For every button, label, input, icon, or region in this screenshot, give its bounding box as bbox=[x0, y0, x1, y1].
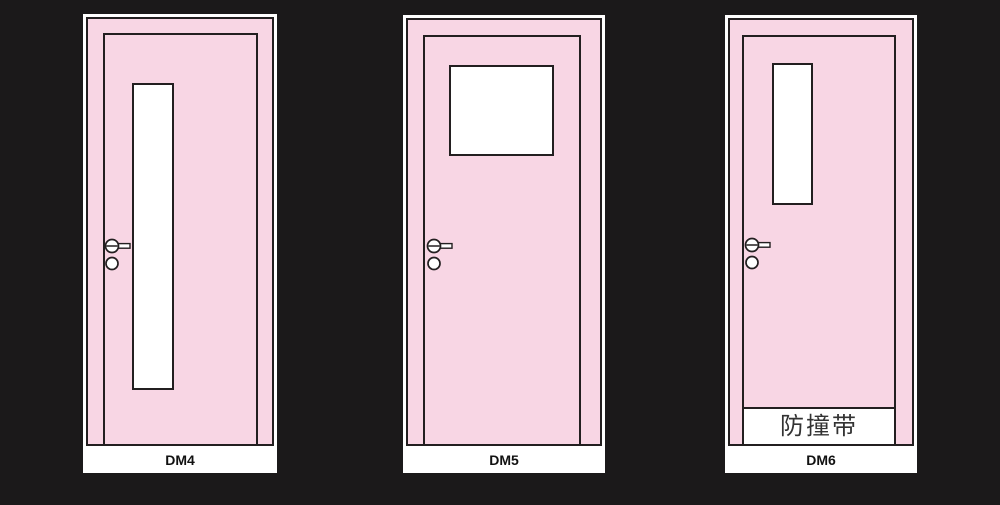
door-leaf bbox=[103, 33, 258, 444]
door-label: DM6 bbox=[725, 446, 917, 473]
door-card-dm4: DM4 bbox=[83, 14, 277, 473]
glass-panel bbox=[449, 65, 554, 156]
door-frame bbox=[406, 18, 602, 446]
glass-panel bbox=[132, 83, 174, 390]
glass-panel bbox=[772, 63, 813, 205]
door-leaf: 防撞带 bbox=[742, 35, 896, 444]
door-frame: 防撞带 bbox=[728, 18, 914, 446]
bumper-strip-label: 防撞带 bbox=[780, 415, 858, 439]
door-label: DM4 bbox=[83, 446, 277, 473]
door-handle-icon bbox=[425, 237, 459, 273]
bumper-strip: 防撞带 bbox=[744, 407, 894, 444]
door-handle-icon bbox=[103, 237, 137, 273]
door-frame bbox=[86, 17, 274, 446]
door-label: DM5 bbox=[403, 446, 605, 473]
door-card-dm5: DM5 bbox=[403, 15, 605, 473]
door-leaf bbox=[423, 35, 581, 444]
door-handle-icon bbox=[743, 236, 777, 272]
door-card-dm6: 防撞带 DM6 bbox=[725, 15, 917, 473]
